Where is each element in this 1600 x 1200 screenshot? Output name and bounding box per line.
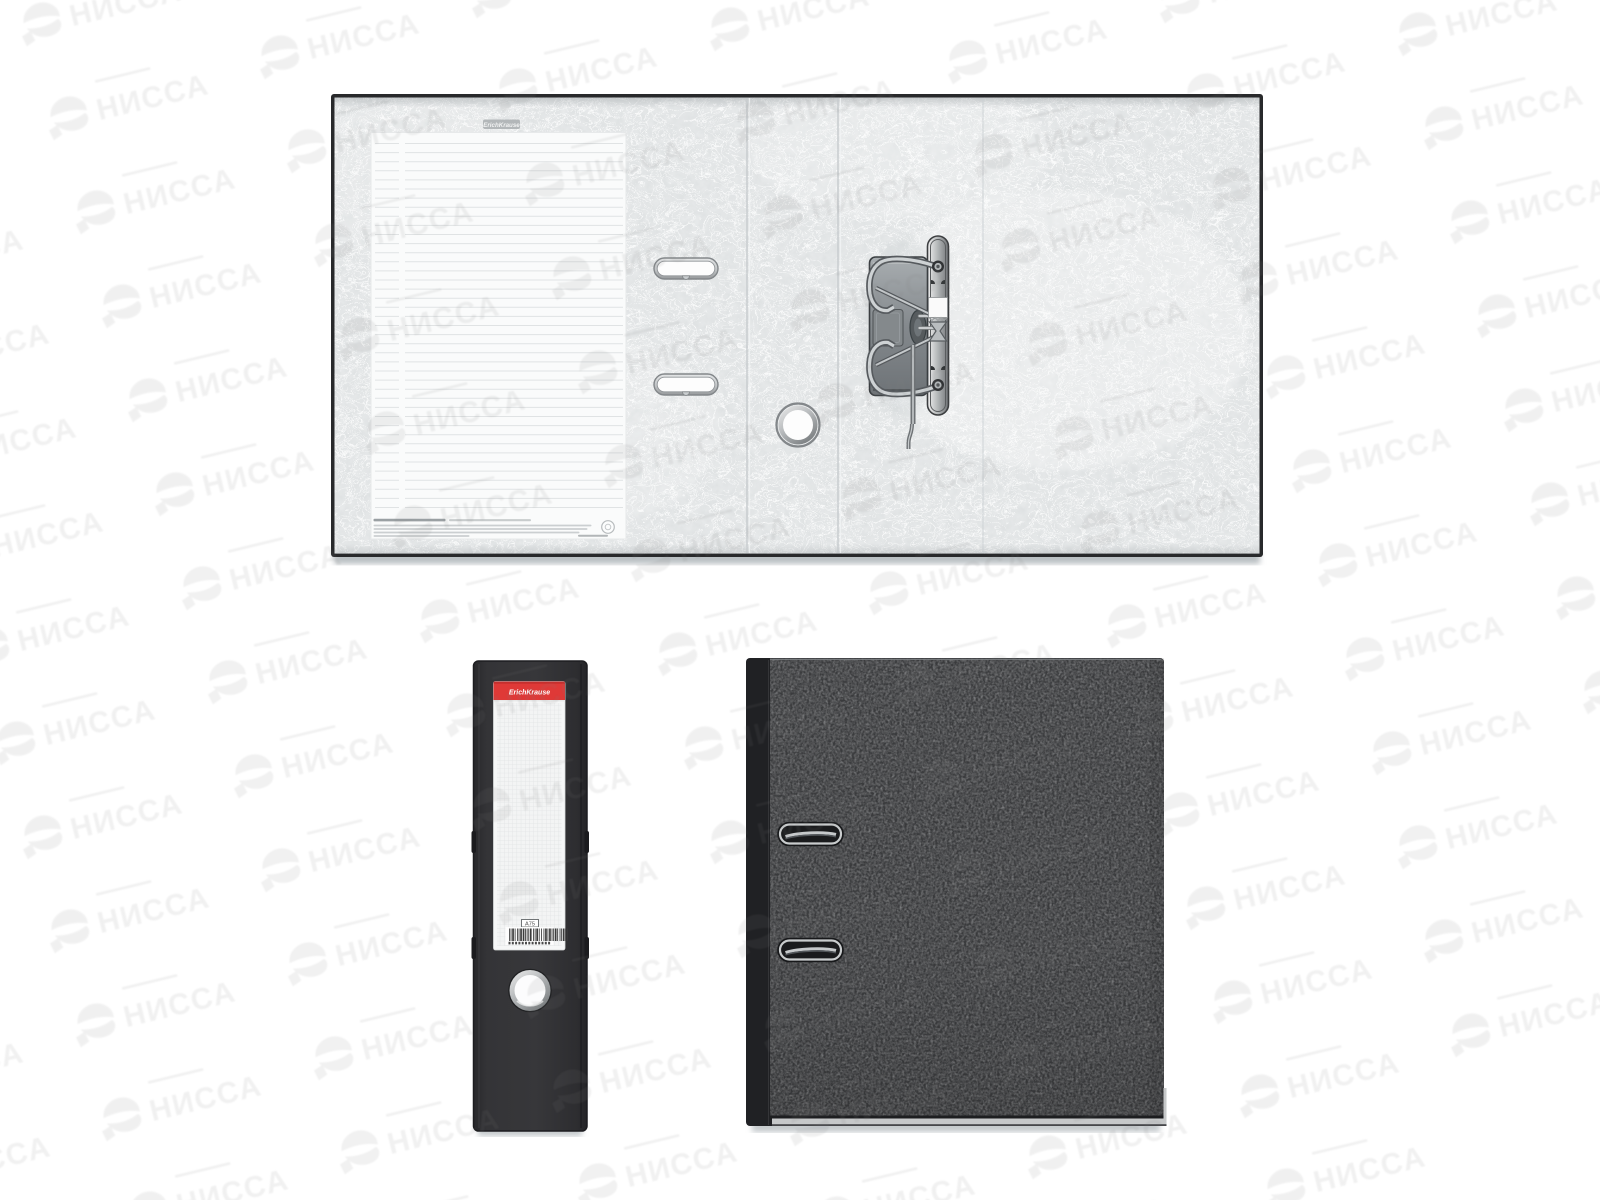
svg-text:A75: A75: [525, 922, 535, 928]
svg-text:ErichKrause: ErichKrause: [483, 122, 520, 129]
